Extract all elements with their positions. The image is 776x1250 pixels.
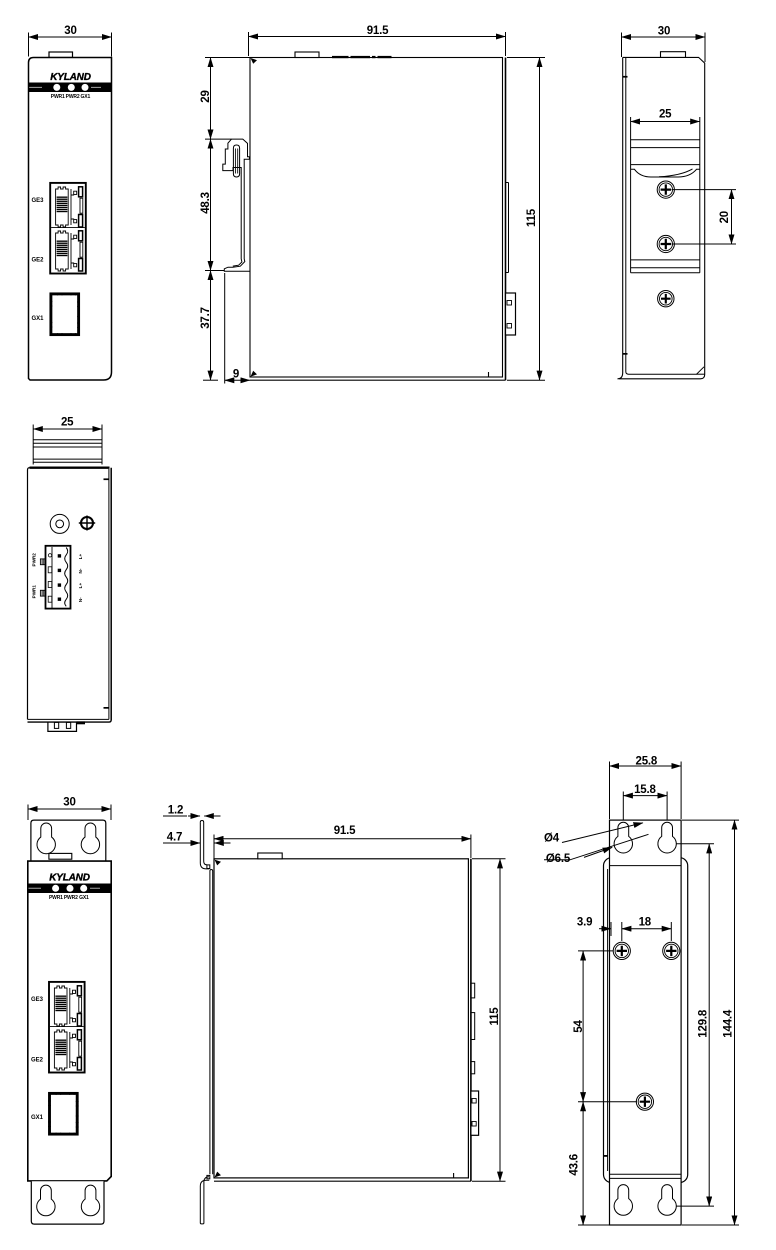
- svg-text:GX1: GX1: [31, 1115, 44, 1121]
- svg-text:115: 115: [489, 1007, 501, 1026]
- svg-text:48.3: 48.3: [200, 192, 212, 214]
- svg-text:43.6: 43.6: [569, 1154, 581, 1176]
- svg-text:GE2: GE2: [31, 258, 44, 264]
- svg-text:PWR2: PWR2: [32, 553, 37, 567]
- svg-text:20: 20: [719, 211, 731, 223]
- svg-text:144.4: 144.4: [722, 1009, 734, 1038]
- svg-text:18: 18: [639, 917, 652, 929]
- svg-text:GE3: GE3: [31, 997, 44, 1003]
- svg-text:37.7: 37.7: [200, 307, 212, 329]
- svg-text:30: 30: [658, 26, 670, 38]
- svg-text:4.7: 4.7: [167, 832, 182, 844]
- svg-text:GX1: GX1: [79, 895, 89, 901]
- svg-text:PWR2: PWR2: [66, 94, 80, 100]
- svg-text:30: 30: [63, 797, 75, 809]
- svg-text:KYLAND: KYLAND: [49, 873, 89, 884]
- svg-text:GX1: GX1: [31, 316, 44, 322]
- svg-text:9: 9: [233, 369, 239, 381]
- svg-text:15.8: 15.8: [634, 784, 656, 796]
- svg-text:PWR1: PWR1: [51, 94, 65, 100]
- svg-text:Ø6.5: Ø6.5: [546, 853, 571, 865]
- svg-text:N-: N-: [78, 597, 83, 602]
- svg-text:91.5: 91.5: [367, 25, 389, 37]
- svg-text:GE3: GE3: [31, 198, 44, 204]
- svg-text:GX1: GX1: [81, 94, 91, 100]
- svg-text:1.2: 1.2: [168, 805, 183, 817]
- svg-text:PWR1: PWR1: [32, 585, 37, 599]
- svg-text:GE2: GE2: [31, 1058, 44, 1064]
- svg-text:L+: L+: [78, 553, 83, 559]
- svg-text:N-: N-: [78, 568, 83, 573]
- svg-text:25: 25: [61, 417, 74, 429]
- svg-text:PWR1: PWR1: [49, 895, 63, 901]
- svg-text:L+: L+: [78, 583, 83, 589]
- svg-text:129.8: 129.8: [697, 1009, 709, 1038]
- svg-text:115: 115: [526, 208, 538, 227]
- svg-text:3.9: 3.9: [577, 917, 592, 929]
- svg-text:30: 30: [64, 25, 76, 37]
- svg-text:KYLAND: KYLAND: [50, 72, 90, 83]
- svg-text:PWR2: PWR2: [64, 895, 78, 901]
- svg-text:91.5: 91.5: [334, 825, 356, 837]
- svg-text:Ø4: Ø4: [544, 833, 560, 845]
- svg-text:25: 25: [659, 109, 672, 121]
